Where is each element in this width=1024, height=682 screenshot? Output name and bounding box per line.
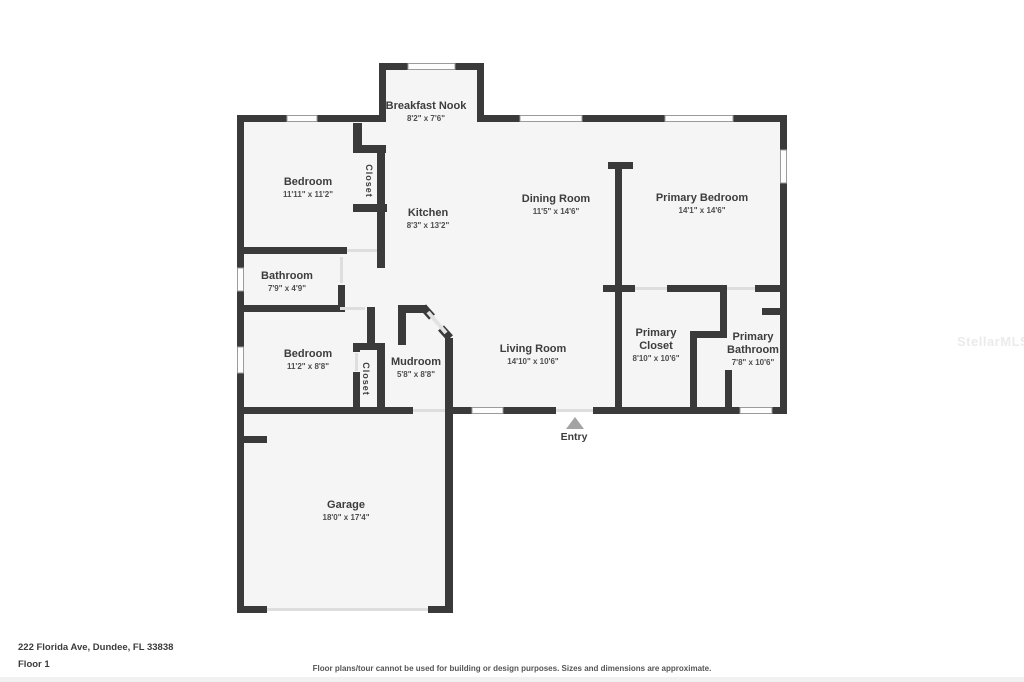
footer-address: 222 Florida Ave, Dundee, FL 33838 [18,642,173,653]
footer-band [0,677,1024,682]
footer-disclaimer: Floor plans/tour cannot be used for buil… [0,664,1024,673]
entry-label: Entry [561,431,588,443]
floor-plan-drawing [0,0,1024,682]
watermark: StellarMLS [957,334,1024,349]
entry-arrow-icon [566,417,584,429]
floor-plan-page: Breakfast Nook 8'2" x 7'6" Bedroom 11'11… [0,0,1024,682]
